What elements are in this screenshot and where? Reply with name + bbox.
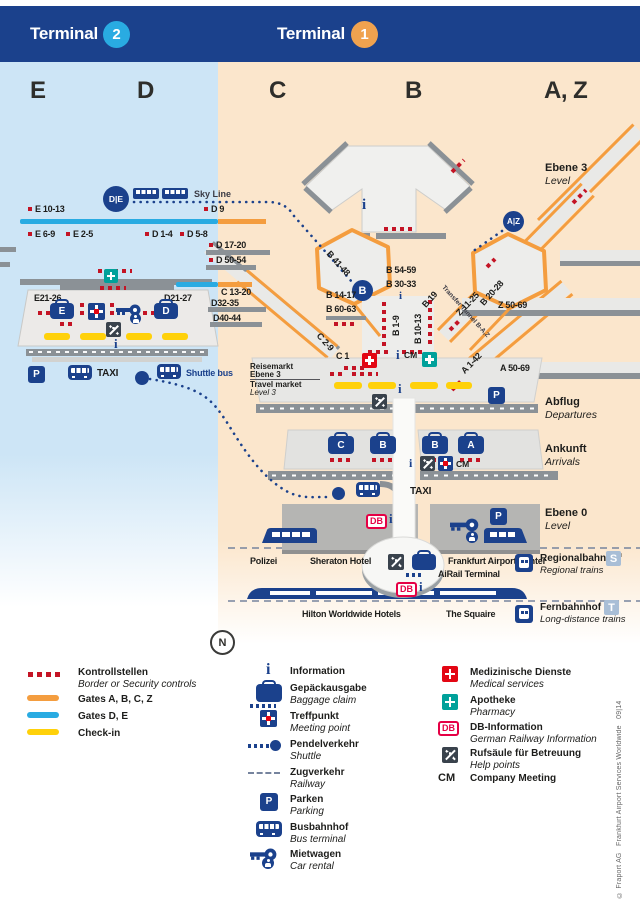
railway-dash bbox=[248, 772, 280, 774]
baggage-claim-c-icon: C bbox=[328, 436, 354, 454]
section-letter-b: B bbox=[405, 77, 422, 105]
parking-icon: P bbox=[260, 793, 278, 811]
pharmacy-icon bbox=[442, 694, 458, 710]
legend-gates-de-bar bbox=[27, 712, 59, 718]
legend-shuttle-en: Shuttle bbox=[290, 751, 321, 762]
help-point-icon bbox=[106, 322, 121, 337]
help-point-icon bbox=[388, 554, 404, 570]
baggage-dots bbox=[406, 573, 422, 577]
help-column-icon bbox=[466, 531, 478, 543]
longdistance-station-de: Fernbahnhof bbox=[540, 602, 601, 613]
longdistance-train-icon bbox=[515, 605, 533, 623]
travel-market-en2: Level 3 bbox=[250, 389, 276, 397]
legend-shuttle-de: Pendelverkehr bbox=[290, 739, 359, 750]
legend-checkin-bar bbox=[27, 729, 59, 735]
section-letter-e: E bbox=[30, 77, 46, 105]
gates-de-bar bbox=[20, 219, 218, 224]
gates-abcz-bar bbox=[218, 219, 266, 224]
security-dots bbox=[80, 303, 84, 319]
baggage-claim-b-icon: B bbox=[370, 436, 396, 454]
baggage-claim-a-icon: A bbox=[458, 436, 484, 454]
section-letter-az: A, Z bbox=[544, 77, 587, 105]
legend-parking-de: Parken bbox=[290, 794, 323, 805]
legend-cm-de: Company Meeting bbox=[470, 773, 556, 784]
help-column-icon bbox=[130, 313, 141, 324]
level3-label-de: Ebene 3 bbox=[545, 162, 587, 174]
hilton-label: Hilton Worldwide Hotels bbox=[302, 609, 401, 619]
gate-label-a50-69: A 50-69 bbox=[500, 364, 530, 373]
legend-carrental-en: Car rental bbox=[290, 861, 334, 872]
information-icon: i bbox=[266, 662, 270, 678]
information-icon: i bbox=[409, 457, 412, 469]
legend-db-de: DB-Information bbox=[470, 722, 543, 733]
az-gates-badge: A|Z bbox=[503, 211, 524, 232]
legend-parking-en: Parking bbox=[290, 806, 324, 817]
pier-bar bbox=[206, 265, 256, 270]
legend-pharmacy-de: Apotheke bbox=[470, 695, 516, 706]
legend-pharmacy-en: Pharmacy bbox=[470, 707, 515, 718]
taxi-label: TAXI bbox=[410, 486, 431, 497]
baggage-dots bbox=[250, 704, 276, 708]
db-information-icon: DB bbox=[366, 514, 387, 529]
legend-baggage-en: Baggage claim bbox=[290, 695, 356, 706]
medical-services-icon bbox=[442, 666, 458, 682]
shuttle-dots bbox=[248, 744, 270, 748]
gate-label-e2-5: E 2-5 bbox=[66, 230, 93, 239]
bus-terminal-icon bbox=[68, 365, 92, 380]
legend-helppoint-de: Rufsäule für Betreuung bbox=[470, 748, 581, 759]
pier-bar bbox=[208, 307, 266, 312]
information-icon: i bbox=[362, 198, 366, 213]
legend-railway-en: Railway bbox=[290, 779, 325, 790]
legend-gates-abcz-bar bbox=[27, 695, 59, 701]
legend-bus-en: Bus terminal bbox=[290, 834, 346, 845]
checkin-bar bbox=[162, 333, 188, 340]
terminal1-number-badge: 1 bbox=[351, 21, 378, 48]
departures-label-en: Departures bbox=[545, 409, 597, 421]
baggage-letter: B bbox=[379, 440, 386, 451]
gate-label-b30-33: B 30-33 bbox=[386, 280, 416, 289]
security-dots bbox=[372, 458, 394, 462]
security-dots bbox=[352, 372, 378, 376]
legend-medical-de: Medizinische Dienste bbox=[470, 667, 571, 678]
car-rental-key-icon bbox=[450, 518, 480, 533]
company-meeting-label: CM bbox=[456, 460, 469, 469]
checkin-bar bbox=[410, 382, 438, 389]
help-column-icon bbox=[262, 857, 274, 869]
legend-security-en: Border or Security controls bbox=[78, 679, 196, 690]
t2-platform-edge bbox=[32, 357, 202, 362]
gate-label-d1-4: D 1-4 bbox=[145, 230, 173, 239]
gate-label-b54-59: B 54-59 bbox=[386, 266, 416, 275]
parking-icon: P bbox=[490, 508, 507, 525]
polizei-label: Polizei bbox=[250, 556, 277, 566]
gate-label-d9: D 9 bbox=[204, 205, 224, 214]
gate-label-z50-69: Z 50-69 bbox=[498, 301, 527, 310]
gate-label-c1: C 1 bbox=[336, 352, 349, 361]
legend-gates-abcz: Gates A, B, C, Z bbox=[78, 694, 153, 705]
terminal2-number-badge: 2 bbox=[103, 21, 130, 48]
company-meeting-label: CM bbox=[404, 351, 417, 360]
legend-railway-de: Zugverkehr bbox=[290, 767, 344, 778]
airail-label: AiRail Terminal bbox=[438, 569, 500, 579]
legend-gates-de: Gates D, E bbox=[78, 711, 128, 722]
shuttle-stop-dot bbox=[135, 371, 149, 385]
airport-terminal-map: Terminal 2 Terminal 1 E D C B A, Z bbox=[0, 0, 640, 905]
checkin-bar bbox=[368, 382, 396, 389]
meeting-point-icon bbox=[438, 456, 453, 471]
information-icon: i bbox=[419, 580, 423, 593]
legend-helppoint-en: Help points bbox=[470, 760, 520, 771]
gate-label-b1-9: B 1-9 bbox=[392, 315, 401, 336]
help-point-icon bbox=[372, 394, 387, 409]
copyright-text: © Fraport AG Frankfurt Airport Services … bbox=[616, 618, 623, 898]
legend-baggage-de: Gepäckausgabe bbox=[290, 683, 367, 694]
baggage-claim-b-icon: B bbox=[422, 436, 448, 454]
checkin-bar bbox=[44, 333, 70, 340]
skyline-train-icon bbox=[133, 188, 159, 199]
shuttle-bus-icon bbox=[356, 482, 380, 497]
pier-bar bbox=[0, 247, 16, 252]
shuttle-stop-dot bbox=[332, 487, 345, 500]
db-information-icon: DB bbox=[438, 721, 459, 736]
arrivals-label-de: Ankunft bbox=[545, 443, 587, 455]
security-dots bbox=[38, 311, 50, 315]
checkin-bar bbox=[126, 333, 152, 340]
information-icon: i bbox=[399, 291, 402, 302]
s-bahn-badge: S bbox=[606, 551, 621, 566]
t-badge: T bbox=[604, 600, 619, 615]
shuttle-stop-dot bbox=[270, 740, 281, 751]
departures-label-de: Abflug bbox=[545, 396, 580, 408]
regional-train-icon bbox=[515, 554, 533, 572]
squaire-label: The Squaire bbox=[446, 609, 495, 619]
baggage-claim-icon bbox=[412, 554, 436, 570]
baggage-claim-e-icon: E bbox=[50, 303, 74, 319]
legend-security-dots bbox=[28, 672, 60, 677]
information-icon: i bbox=[389, 512, 393, 525]
parking-icon: P bbox=[28, 366, 45, 383]
baggage-letter: A bbox=[467, 440, 474, 451]
legend-security-de: Kontrollstellen bbox=[78, 667, 148, 678]
baggage-letter: B bbox=[431, 440, 438, 451]
checkin-bar bbox=[446, 382, 472, 389]
skyline-train-icon bbox=[162, 188, 188, 199]
checkin-bar bbox=[334, 382, 362, 389]
pier-bar bbox=[326, 316, 366, 320]
legend-carrental-de: Mietwagen bbox=[290, 849, 341, 860]
pharmacy-icon bbox=[422, 352, 437, 367]
bus-terminal-icon bbox=[256, 821, 282, 837]
level3-label-en: Level bbox=[545, 175, 570, 187]
legend-information: Information bbox=[290, 666, 345, 677]
db-information-icon: DB bbox=[396, 582, 417, 597]
gate-label-d17-20: D 17-20 bbox=[209, 241, 246, 250]
shuttle-bus-icon bbox=[157, 364, 181, 379]
legend-meeting-en: Meeting point bbox=[290, 723, 350, 734]
baggage-claim-d-icon: D bbox=[154, 303, 178, 319]
gate-label-c13-20: C 13-20 bbox=[221, 288, 251, 297]
security-dots bbox=[330, 372, 344, 376]
gate-label-d5-8: D 5-8 bbox=[180, 230, 208, 239]
arrivals-label-en: Arrivals bbox=[545, 456, 580, 468]
gate-label-d50-54: D 50-54 bbox=[209, 256, 246, 265]
pier-bar bbox=[0, 262, 10, 267]
pharmacy-icon bbox=[104, 269, 118, 283]
security-dots bbox=[384, 227, 414, 231]
section-letter-d: D bbox=[137, 77, 154, 105]
baggage-letter: E bbox=[59, 306, 66, 317]
terminal2-title: Terminal bbox=[30, 24, 98, 44]
t2-platform-bar bbox=[26, 349, 208, 356]
terminal1-title: Terminal bbox=[277, 24, 345, 44]
regional-station-en: Regional trains bbox=[540, 565, 603, 576]
information-icon: i bbox=[396, 348, 400, 361]
gate-label-e6-9: E 6-9 bbox=[28, 230, 55, 239]
legend-checkin: Check-in bbox=[78, 728, 120, 739]
skyline-de-badge: D|E bbox=[103, 186, 129, 212]
help-point-icon bbox=[420, 456, 435, 471]
legend-bus-de: Busbahnhof bbox=[290, 822, 348, 833]
section-letter-c: C bbox=[269, 77, 286, 105]
skyline-label: Sky Line bbox=[194, 190, 231, 199]
baggage-letter: C bbox=[337, 440, 344, 451]
legend-meeting-de: Treffpunkt bbox=[290, 711, 339, 722]
north-compass: N bbox=[210, 630, 235, 655]
security-dots bbox=[330, 458, 352, 462]
medical-services-icon bbox=[362, 353, 377, 368]
level0-label-en: Level bbox=[545, 520, 570, 532]
security-dots bbox=[110, 303, 114, 319]
legend-medical-en: Medical services bbox=[470, 679, 544, 690]
level0-label-de: Ebene 0 bbox=[545, 507, 587, 519]
gate-label-b10-13: B 10-13 bbox=[414, 314, 423, 344]
gate-label-b60-63: B 60-63 bbox=[326, 305, 356, 314]
pier-bar bbox=[210, 322, 262, 327]
gate-label-e10-13: E 10-13 bbox=[28, 205, 64, 214]
company-meeting-symbol: CM bbox=[438, 772, 455, 784]
gates-de-bar bbox=[176, 282, 218, 287]
shuttle-bus-label: Shuttle bus bbox=[186, 368, 233, 378]
parking-icon: P bbox=[488, 387, 505, 404]
baggage-letter: D bbox=[162, 306, 169, 317]
longdistance-station-en: Long-distance trains bbox=[540, 614, 626, 625]
taxi-label: TAXI bbox=[97, 368, 118, 379]
security-dots bbox=[100, 286, 126, 290]
security-dots bbox=[382, 302, 386, 346]
security-dots bbox=[344, 366, 364, 370]
meeting-point-icon bbox=[260, 710, 277, 727]
meeting-point-icon bbox=[88, 303, 105, 320]
legend-db-en: German Railway Information bbox=[470, 734, 597, 745]
security-dots bbox=[60, 322, 72, 326]
information-icon: i bbox=[398, 382, 402, 395]
checkin-bar bbox=[80, 333, 106, 340]
security-dots bbox=[334, 322, 356, 326]
sheraton-label: Sheraton Hotel bbox=[310, 556, 371, 566]
baggage-claim-icon bbox=[256, 684, 282, 702]
gate-label-b14-17: B 14-17 bbox=[326, 291, 356, 300]
help-point-icon bbox=[442, 747, 458, 763]
